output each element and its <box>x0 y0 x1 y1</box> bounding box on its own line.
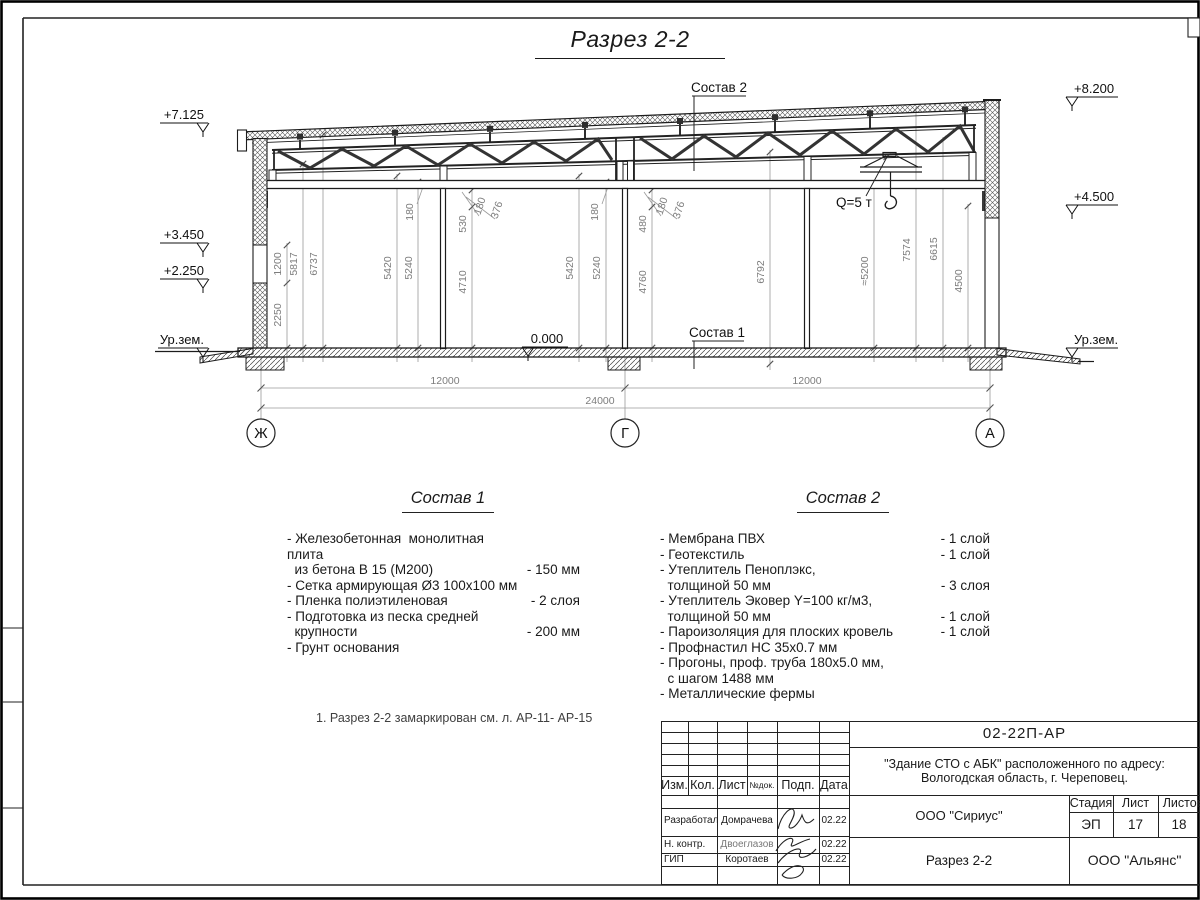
dim: 5420 <box>564 256 576 280</box>
tb-col-podp: Подп. <box>777 776 819 795</box>
tb-section-name: Разрез 2-2 <box>849 837 1069 884</box>
sostav2-leader-label: Состав 2 <box>691 80 747 95</box>
list-item: - Железобетонная монолитная плита из бет… <box>287 531 580 578</box>
list-item: - Утеплитель Пеноплэкс, толщиной 50 мм- … <box>660 562 990 593</box>
apron-left <box>200 349 253 364</box>
list-item: - Утеплитель Эковер Y=100 кг/м3, толщино… <box>660 593 990 624</box>
sostav1-leader-label: Состав 1 <box>689 325 745 340</box>
tb-date-2: 02.22 <box>819 836 849 853</box>
tb-col-data: Дата <box>819 776 849 795</box>
list-item: - Металлические фермы <box>660 686 990 702</box>
list-item: - Геотекстиль- 1 слой <box>660 547 990 563</box>
elevation-right-1: +8.200 <box>1074 81 1114 96</box>
elevation-right-2: +4.500 <box>1074 189 1114 204</box>
tb-sheets-label: Листов <box>1158 795 1200 812</box>
dim: 180 <box>589 203 601 221</box>
list-item: - Прогоны, проф. труба 180х5.0 мм, с шаг… <box>660 655 990 686</box>
dim: 180 <box>404 203 416 221</box>
elevation-left-ground: Ур.зем. <box>160 332 204 347</box>
eave-plate <box>238 130 247 151</box>
dim: 6737 <box>308 252 320 276</box>
tb-sheets-value: 18 <box>1158 812 1200 837</box>
title-block: Изм. Кол. Лист №док. Подп. Дата Разработ… <box>661 721 1200 885</box>
signature-2 <box>773 833 821 883</box>
tb-role-1: Разработал <box>661 808 720 833</box>
span-dim-total: 24000 <box>585 395 614 407</box>
floor-slab <box>155 348 1094 370</box>
vertical-dimensions: 1200 2250 5817 6737 5420 5240 180 530 47… <box>272 196 965 327</box>
tb-stage-value: ЭП <box>1069 812 1113 837</box>
tb-role-2: Н. контр. <box>661 836 720 853</box>
wall-right <box>983 100 1001 348</box>
span-dim-right: 12000 <box>792 375 821 387</box>
elevation-floor: 0.000 <box>531 331 564 346</box>
dim: 480 <box>637 215 649 233</box>
dim: 376 <box>489 200 506 221</box>
sostav1-list: - Железобетонная монолитная плита из бет… <box>287 531 580 655</box>
signature-1 <box>775 801 819 837</box>
dim: 6792 <box>755 260 767 284</box>
span-dimensions: 12000 12000 24000 <box>430 375 821 407</box>
list-item: - Пленка полиэтиленовая- 2 слоя <box>287 593 580 609</box>
dim: 5817 <box>288 252 300 276</box>
tb-project-name: "Здание СТО с АБК" расположенного по адр… <box>849 747 1200 795</box>
dim: 4760 <box>637 270 649 294</box>
elevation-right-ground: Ур.зем. <box>1074 332 1118 347</box>
elevation-left-3: +2.250 <box>164 263 204 278</box>
crane-capacity-label: Q=5 т <box>836 195 872 210</box>
drawing-sheet: +7.125 +3.450 +2.250 Ур.зем. +8.200 +4.5… <box>0 0 1200 900</box>
tb-sheet-label: Лист <box>1113 795 1158 812</box>
axis-bubbles: Ж Г А <box>247 419 1004 447</box>
tb-doc-code: 02-22П-АР <box>849 721 1200 747</box>
tb-stage-label: Стадия <box>1069 795 1113 812</box>
tb-col-kol: Кол. <box>688 776 717 795</box>
dim: 180 <box>472 196 489 217</box>
roof <box>238 101 1000 151</box>
sostav2-list: - Мембрана ПВХ- 1 слой - Геотекстиль- 1 … <box>660 531 990 702</box>
dim: 4500 <box>953 269 965 293</box>
tb-col-list: Лист <box>717 776 747 795</box>
dim: 5420 <box>382 256 394 280</box>
dim: ≈5200 <box>859 256 871 285</box>
dim: 2250 <box>272 303 284 327</box>
list-item: - Подготовка из песка средней крупности-… <box>287 609 580 640</box>
tb-name-3: Коротаев <box>717 853 777 866</box>
axis-bubble-a: А <box>985 426 995 442</box>
list-item: - Пароизоляция для плоских кровель- 1 сл… <box>660 624 990 640</box>
axis-bubble-zh: Ж <box>254 426 268 442</box>
dim: 180 <box>654 196 671 217</box>
list-item: - Грунт основания <box>287 640 580 656</box>
tb-sheet-value: 17 <box>1113 812 1158 837</box>
elevation-left-1: +7.125 <box>164 107 204 122</box>
dim: 4710 <box>457 270 469 294</box>
sostav2-title: Состав 2 <box>797 489 889 513</box>
dim: 376 <box>671 200 688 221</box>
axis-bubble-g: Г <box>621 426 629 442</box>
dim: 5240 <box>591 256 603 280</box>
strapping-beam <box>253 181 997 189</box>
list-item: - Мембрана ПВХ- 1 слой <box>660 531 990 547</box>
leader-labels: Состав 2 Состав 1 Q=5 т <box>689 80 872 369</box>
sheet-title: Разрез 2-2 <box>535 26 725 59</box>
dim: 530 <box>457 215 469 233</box>
tb-role-3: ГИП <box>661 853 720 866</box>
tb-org-contractor: ООО "Альянс" <box>1069 837 1200 884</box>
list-item: - Сетка армирующая Ø3 100х100 мм <box>287 578 580 594</box>
tb-date-3: 02.22 <box>819 853 849 866</box>
sostav1-title: Состав 1 <box>402 489 494 513</box>
dim: 6615 <box>928 237 940 261</box>
tb-col-ndok: №док. <box>747 776 777 795</box>
dim: 7574 <box>901 238 913 262</box>
span-dim-left: 12000 <box>430 375 459 387</box>
tb-org-design: ООО "Сириус" <box>849 795 1069 837</box>
list-item: - Профнастил НС 35х0.7 мм <box>660 640 990 656</box>
tb-name-2: Двоеглазов <box>717 836 777 853</box>
dim: 5240 <box>403 256 415 280</box>
tb-col-izm: Изм. <box>661 776 688 795</box>
elevation-left-2: +3.450 <box>164 227 204 242</box>
tb-date-1: 02.22 <box>819 808 849 833</box>
tb-name-1: Домрачева <box>717 808 777 833</box>
wall-left <box>253 139 267 349</box>
dim: 1200 <box>272 252 284 276</box>
sheet-note: 1. Разрез 2-2 замаркирован см. л. АР-11-… <box>316 711 592 725</box>
